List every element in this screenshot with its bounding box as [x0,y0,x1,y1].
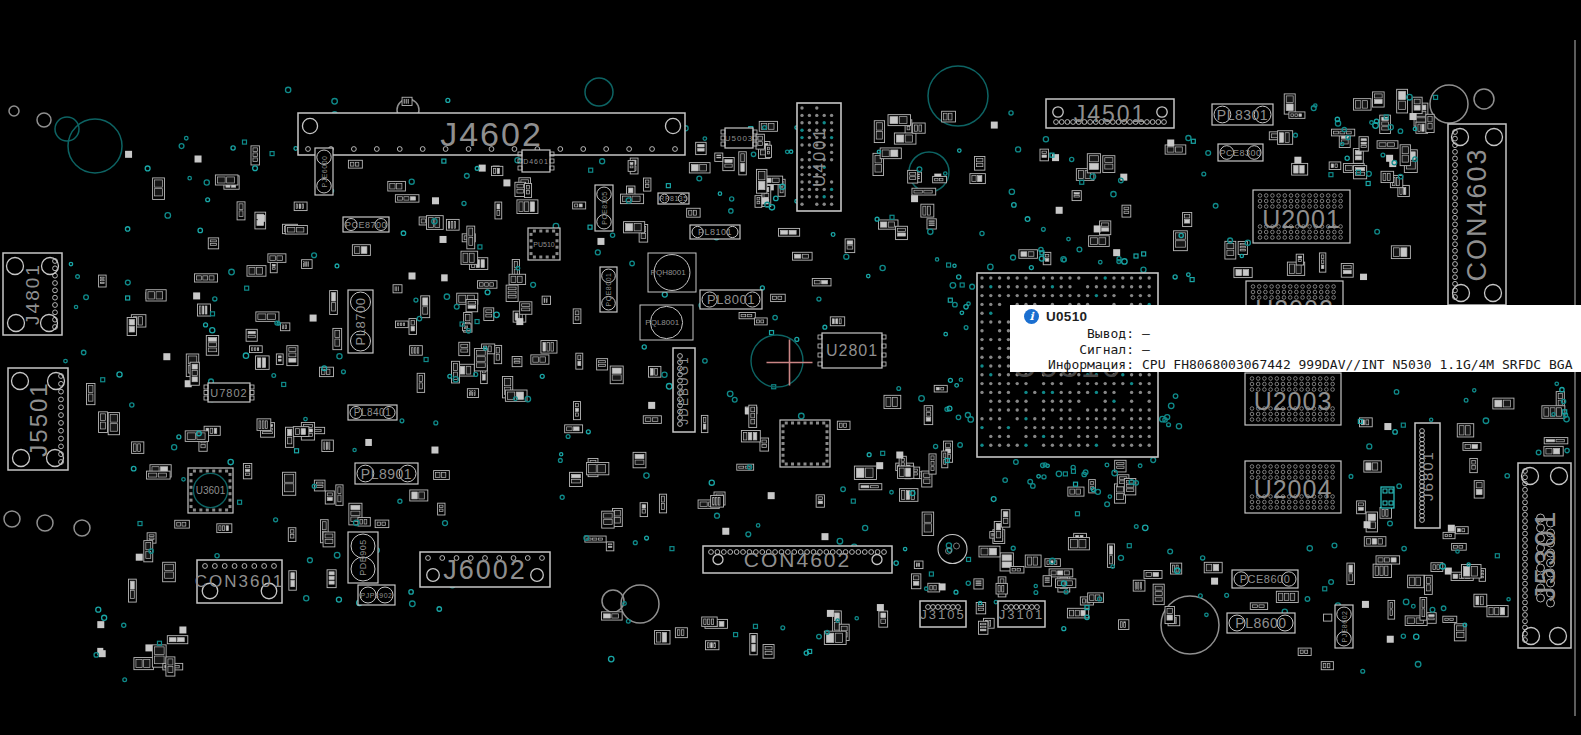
smd-component[interactable] [520,302,532,314]
smd-component[interactable] [1040,149,1048,161]
smd-component[interactable] [87,383,95,404]
component-J3105[interactable]: J3105 [920,601,966,627]
smd-component[interactable] [1289,112,1305,118]
smd-component[interactable] [257,419,271,431]
component-PL8600[interactable]: PL8600 [1227,613,1295,633]
smd-component[interactable] [610,366,623,384]
smd-component[interactable] [1120,174,1127,181]
smd-component[interactable] [395,321,408,328]
smd-component[interactable] [446,219,459,230]
smd-component[interactable] [146,471,170,479]
smd-component[interactable] [723,158,734,171]
smd-component[interactable] [1391,246,1410,259]
smd-component[interactable] [256,312,279,321]
component-PL8301[interactable]: PL8301 [1212,104,1273,125]
smd-component[interactable] [1400,145,1410,166]
smd-component[interactable] [215,175,238,185]
smd-component[interactable] [358,517,370,526]
smd-component[interactable] [837,421,850,429]
smd-component[interactable] [1296,254,1303,265]
smd-component[interactable] [908,170,918,183]
smd-component[interactable] [474,349,487,371]
smd-component[interactable] [1234,268,1252,278]
smd-component[interactable] [1397,89,1408,113]
component-J6801[interactable]: J6801 [1415,423,1440,528]
component-U2003[interactable]: U2003 [1245,373,1341,425]
smd-component[interactable] [217,524,232,533]
smd-component[interactable] [1470,459,1478,473]
component-PJE8602[interactable]: PJE8602 [1335,605,1353,648]
smd-component[interactable] [1025,555,1041,567]
smd-component[interactable] [659,494,666,513]
smd-component[interactable] [701,415,707,432]
smd-component[interactable] [778,228,799,236]
smd-component[interactable] [894,133,916,144]
smd-component[interactable] [1425,575,1433,594]
smd-component[interactable] [247,266,266,277]
smd-component[interactable] [1463,443,1481,451]
smd-component[interactable] [991,122,998,129]
smd-component[interactable] [922,512,933,535]
smd-component[interactable] [198,304,211,316]
smd-component[interactable] [896,226,908,239]
smd-component[interactable] [597,359,608,370]
smd-component[interactable] [515,182,526,196]
smd-component[interactable] [689,163,710,173]
smd-component[interactable] [434,471,450,480]
smd-component[interactable] [739,313,755,319]
smd-component[interactable] [409,272,416,279]
smd-component[interactable] [509,274,526,284]
smd-component[interactable] [884,395,901,408]
component-J4501[interactable]: J4501 [1046,99,1174,128]
smd-component[interactable] [136,554,143,561]
smd-component[interactable] [99,650,106,657]
smd-component[interactable] [195,274,218,282]
smd-component[interactable] [421,296,430,318]
smd-component[interactable] [491,166,502,175]
smd-component[interactable] [190,362,199,385]
component-PL8401[interactable]: PL8401 [348,405,397,420]
smd-component[interactable] [877,604,884,611]
smd-component[interactable] [503,179,510,186]
smd-component[interactable] [1010,566,1024,573]
component-PL8001[interactable]: PL8001 [700,290,762,309]
smd-component[interactable] [643,416,661,424]
smd-component[interactable] [929,454,936,474]
smd-component[interactable] [715,153,723,161]
smd-component[interactable] [741,430,760,441]
smd-component[interactable] [573,309,581,324]
smd-component[interactable] [1332,129,1355,136]
component-PJP8902[interactable]: PJP8902 [358,585,395,605]
smd-component[interactable] [1089,236,1110,247]
smd-component[interactable] [1319,253,1325,272]
smd-component[interactable] [975,156,985,170]
smd-component[interactable] [99,275,107,287]
smd-component[interactable] [525,184,532,198]
smd-component[interactable] [302,260,313,269]
smd-component[interactable] [1354,99,1372,110]
smd-component[interactable] [179,626,186,633]
smd-component[interactable] [970,174,985,184]
smd-component[interactable] [978,621,987,634]
component-PJE6000[interactable]: PJE6000 [315,148,333,195]
smd-component[interactable] [410,346,423,356]
smd-component[interactable] [1359,137,1368,151]
smd-component[interactable] [749,405,757,427]
smd-component[interactable] [1357,501,1366,514]
smd-component[interactable] [927,219,936,229]
smd-component[interactable] [574,402,581,420]
component-D4601[interactable]: D4601 [518,150,554,172]
smd-component[interactable] [576,353,583,369]
smd-component[interactable] [845,239,855,253]
component-PCE8600[interactable]: PCE8600 [1232,570,1298,588]
smd-component[interactable] [1108,544,1115,567]
smd-component[interactable] [1119,620,1129,630]
smd-component[interactable] [913,123,926,133]
component-PQE8001[interactable]: PQE8001 [600,267,617,312]
smd-component[interactable] [602,511,614,528]
smd-component[interactable] [333,328,342,349]
smd-component[interactable] [597,238,604,245]
smd-component[interactable] [166,657,175,676]
smd-component[interactable] [99,412,108,433]
smd-component[interactable] [467,226,475,249]
component-U7802[interactable]: U7802 [204,383,254,402]
component-JDEBUG1[interactable]: JDEBUG1 [673,348,695,432]
smd-component[interactable] [1001,510,1010,527]
smd-component[interactable] [760,438,769,451]
smd-component[interactable] [824,631,846,644]
smd-component[interactable] [771,294,786,301]
smd-component[interactable] [246,329,257,341]
smd-component[interactable] [1544,438,1568,444]
smd-component[interactable] [1427,613,1436,624]
smd-component[interactable] [854,466,876,479]
smd-component[interactable] [285,226,307,235]
smd-component[interactable] [276,354,283,365]
smd-component[interactable] [467,389,478,398]
smd-component[interactable] [1122,205,1131,217]
smd-component[interactable] [687,208,700,217]
smd-component[interactable] [722,528,729,535]
component[interactable] [938,535,967,564]
smd-component[interactable] [911,574,920,589]
smd-component[interactable] [768,492,775,499]
component-U2001[interactable]: U2001 [1253,190,1350,243]
smd-component[interactable] [1384,423,1391,430]
smd-component[interactable] [750,634,757,655]
component-PCE8300[interactable]: PCE8300 [1218,144,1263,161]
smd-component[interactable] [996,583,1007,594]
component-PL8101[interactable]: PL8101 [690,225,740,239]
smd-component[interactable] [438,503,445,515]
smd-component[interactable] [754,318,767,325]
smd-component[interactable] [426,216,443,230]
smd-component[interactable] [1068,537,1089,549]
component-U2004[interactable]: U2004 [1245,461,1341,513]
smd-component[interactable] [484,308,494,321]
smd-component[interactable] [570,472,583,486]
smd-component[interactable] [1072,191,1081,201]
smd-component[interactable] [330,291,338,315]
smd-component[interactable] [167,636,187,644]
smd-component[interactable] [479,165,486,172]
smd-component[interactable] [286,427,294,447]
smd-component[interactable] [1278,131,1293,145]
smd-component[interactable] [1457,424,1473,437]
smd-component[interactable] [1360,274,1367,280]
component-PQH8001[interactable]: PQH8001 [648,253,696,292]
smd-component[interactable] [1420,597,1427,620]
smd-component[interactable] [1113,249,1120,256]
smd-component[interactable] [1324,614,1332,621]
smd-component[interactable] [928,583,940,592]
smd-component[interactable] [243,463,251,478]
smd-component[interactable] [1103,156,1115,173]
smd-component[interactable] [924,406,933,425]
smd-component[interactable] [516,318,523,325]
component-CON3601[interactable]: CON3601 [195,560,285,603]
smd-component[interactable] [1452,543,1467,550]
smd-component[interactable] [1068,487,1084,496]
smd-component[interactable] [206,335,218,355]
smd-component[interactable] [921,204,934,217]
smd-component[interactable] [132,442,144,454]
smd-component[interactable] [1443,532,1455,538]
smd-component[interactable] [348,160,362,168]
smd-component[interactable] [293,427,309,437]
smd-component[interactable] [648,402,655,409]
smd-component[interactable] [1094,225,1101,232]
smd-component[interactable] [888,115,910,126]
smd-component[interactable] [294,202,307,211]
smd-component[interactable] [1045,559,1060,567]
smd-component[interactable] [755,196,762,208]
smd-component[interactable] [816,495,824,507]
smd-component[interactable] [459,342,470,355]
component-U2801[interactable]: U2801 [818,333,886,368]
smd-component[interactable] [506,285,518,301]
component-U5003[interactable]: U5003 [721,128,757,148]
smd-component[interactable] [417,373,424,392]
smd-component[interactable] [541,341,557,354]
smd-component[interactable] [979,546,1000,557]
smd-component[interactable] [606,542,614,551]
component-CON4602[interactable]: CON4602 [703,546,892,573]
smd-component[interactable] [1448,525,1455,532]
smd-component[interactable] [431,447,438,454]
smd-component[interactable] [237,202,245,220]
smd-component[interactable] [1364,537,1386,546]
smd-component[interactable] [655,631,670,645]
smd-component[interactable] [375,520,389,528]
component-J4801[interactable]: J4801 [3,253,62,335]
smd-component[interactable] [1461,564,1481,578]
smd-component[interactable] [757,169,767,193]
smd-component[interactable] [1341,263,1353,277]
smd-component[interactable] [395,195,419,202]
smd-component[interactable] [1381,171,1394,182]
smd-component[interactable] [512,356,522,366]
smd-component[interactable] [1408,575,1424,588]
smd-component[interactable] [270,263,277,273]
smd-component[interactable] [336,485,343,505]
smd-component[interactable] [1364,461,1381,472]
component[interactable] [780,420,830,467]
smd-component[interactable] [1387,636,1394,643]
smd-component[interactable] [1386,155,1393,162]
smd-component[interactable] [1250,603,1267,610]
smd-component[interactable] [1347,563,1354,584]
smd-component[interactable] [1377,141,1398,148]
smd-component[interactable] [1487,605,1508,616]
smd-component[interactable] [289,571,296,590]
smd-component[interactable] [505,390,527,401]
smd-component[interactable] [1294,157,1301,164]
smd-component[interactable] [517,200,538,214]
smd-component[interactable] [388,181,406,191]
smd-component[interactable] [441,274,447,281]
smd-component[interactable] [352,245,370,256]
smd-component[interactable] [879,611,888,627]
smd-component[interactable] [633,452,646,467]
smd-component[interactable] [1443,616,1457,622]
smd-component[interactable] [696,142,706,154]
smd-component[interactable] [763,645,774,659]
smd-component[interactable] [640,503,647,517]
smd-component[interactable] [134,658,153,670]
smd-component[interactable] [896,452,903,459]
smd-component[interactable] [1043,576,1051,586]
smd-component[interactable] [793,252,813,260]
smd-component[interactable] [1298,648,1311,655]
smd-component[interactable] [1133,580,1145,591]
smd-component[interactable] [1204,562,1222,573]
smd-component[interactable] [365,439,372,446]
smd-component[interactable] [602,612,623,620]
smd-component[interactable] [565,425,583,433]
smd-component[interactable] [322,440,333,451]
smd-component[interactable] [256,356,270,370]
component-PL8700[interactable]: PL8700 [348,290,373,353]
smd-component[interactable] [706,641,719,650]
smd-component[interactable] [461,251,478,264]
component-RP8135[interactable]: RP8135 [658,193,689,204]
smd-component[interactable] [933,176,947,182]
smd-component[interactable] [1153,584,1164,604]
smd-component[interactable] [1019,250,1038,259]
smd-component[interactable] [628,161,635,172]
smd-component[interactable] [393,285,402,293]
smd-component[interactable] [620,194,643,204]
smd-component[interactable] [258,215,265,222]
smd-component[interactable] [876,462,883,469]
smd-component[interactable] [327,570,336,588]
smd-component[interactable] [163,353,170,360]
smd-component[interactable] [1373,564,1391,577]
smd-component[interactable] [675,628,687,638]
smd-component[interactable] [827,610,834,617]
smd-component[interactable] [1362,601,1369,608]
component-PCE8700[interactable]: PCE8700 [343,217,389,232]
smd-component[interactable] [1493,398,1514,409]
smd-component[interactable] [900,489,918,502]
smd-component[interactable] [765,145,771,157]
smd-component[interactable] [466,299,478,311]
smd-component[interactable] [1144,570,1162,578]
smd-component[interactable] [153,178,165,199]
component-J5501[interactable]: J5501 [8,368,68,470]
smd-component[interactable] [325,491,334,504]
smd-component[interactable] [478,281,497,288]
smd-component[interactable] [912,188,936,195]
smd-component[interactable] [702,617,717,626]
smd-component[interactable] [1183,212,1192,226]
smd-component[interactable] [97,621,104,628]
component-U3601[interactable]: U3601 [188,468,233,513]
highlighted-component[interactable] [1381,487,1394,508]
smd-component[interactable] [268,254,286,263]
smd-component[interactable] [193,292,200,299]
smd-component[interactable] [288,528,296,542]
smd-component[interactable] [939,583,946,590]
component-J4602[interactable]: J4602 [298,113,685,155]
smd-component[interactable] [759,121,777,131]
smd-component[interactable] [175,520,190,528]
smd-component[interactable] [163,562,176,581]
smd-component[interactable] [1056,207,1063,214]
smd-component[interactable] [145,644,152,651]
smd-component[interactable] [880,148,901,159]
smd-component[interactable] [1364,521,1371,528]
smd-component[interactable] [934,385,947,392]
smd-component[interactable] [898,466,914,478]
smd-component[interactable] [914,561,923,569]
smd-component[interactable] [643,178,650,191]
smd-component[interactable] [531,355,549,364]
smd-component[interactable] [1284,94,1295,114]
smd-component[interactable] [587,462,609,474]
smd-component[interactable] [573,202,586,209]
smd-component[interactable] [1321,662,1333,670]
smd-component[interactable] [711,496,724,508]
smd-component[interactable] [251,146,260,165]
component-J5301[interactable]: J5301 [1518,463,1571,648]
smd-component[interactable] [125,151,132,158]
smd-component[interactable] [283,472,296,495]
smd-component[interactable] [1225,241,1236,259]
smd-component[interactable] [1292,163,1308,175]
smd-component[interactable] [1100,221,1111,235]
smd-component[interactable] [410,490,428,501]
smd-component[interactable] [974,579,983,589]
smd-component[interactable] [409,319,416,335]
smd-component[interactable] [287,346,298,366]
smd-component[interactable] [195,156,202,163]
smd-component[interactable] [1049,569,1073,577]
component-PQL8001[interactable]: PQL8001 [640,305,693,340]
smd-component[interactable] [108,413,119,435]
smd-component[interactable] [1412,97,1422,113]
smd-component[interactable] [1544,446,1563,456]
smd-component[interactable] [146,290,166,301]
smd-component[interactable] [542,296,550,304]
smd-component[interactable] [1165,607,1174,624]
smd-component[interactable] [1456,527,1469,534]
